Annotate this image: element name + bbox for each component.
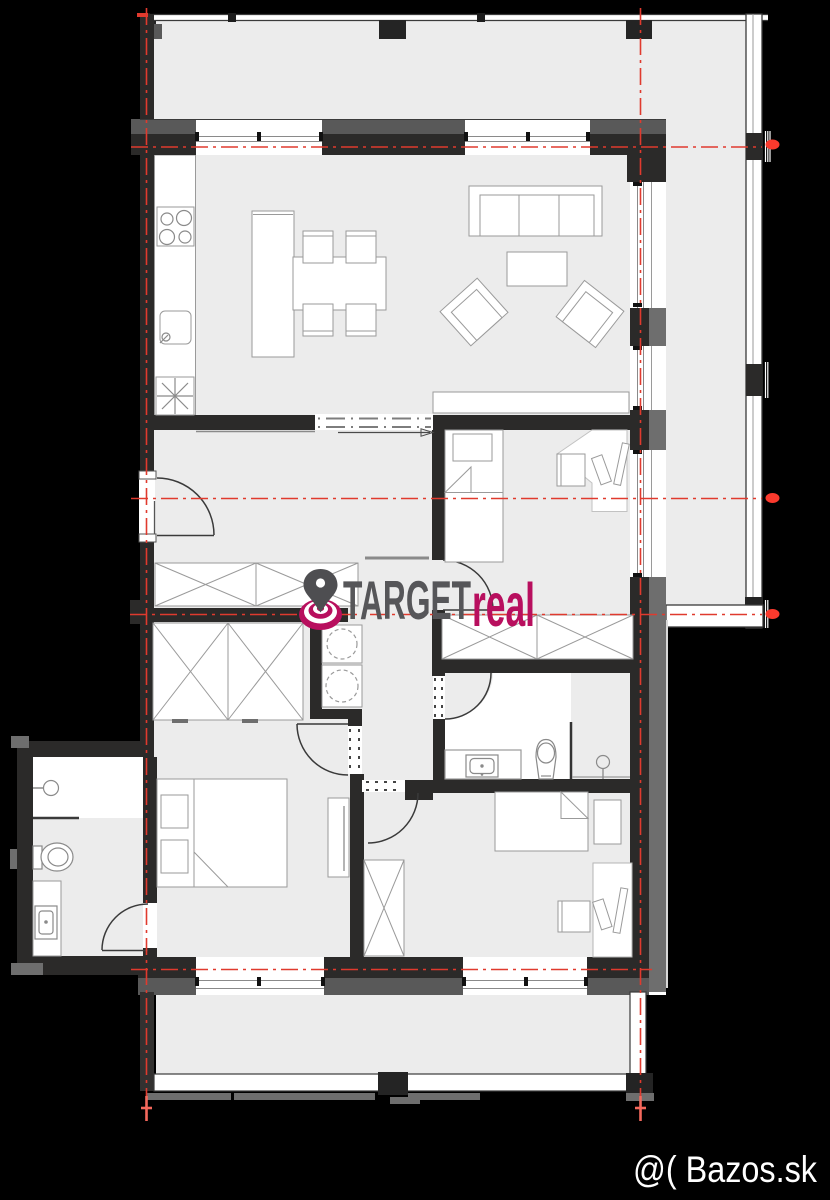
- svg-text:TARGET: TARGET: [343, 569, 471, 631]
- svg-text:@( Bazos.sk: @( Bazos.sk: [633, 1149, 817, 1190]
- svg-text:real: real: [472, 571, 535, 639]
